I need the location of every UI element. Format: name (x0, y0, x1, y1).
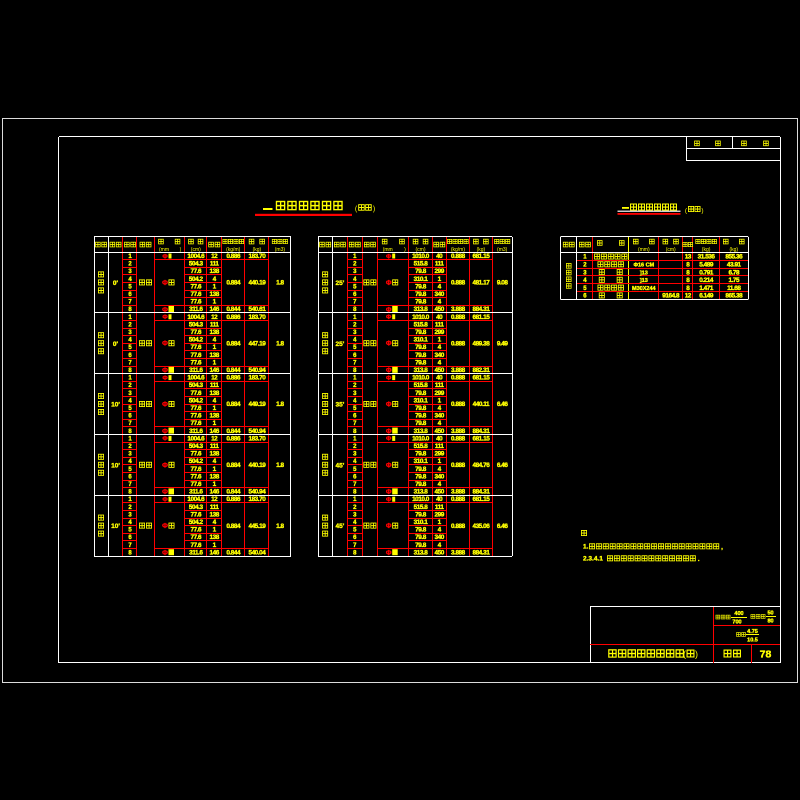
svg-text:78: 78 (760, 649, 772, 661)
svg-text:1004.6: 1004.6 (187, 435, 205, 442)
svg-text:450: 450 (435, 489, 445, 496)
svg-text:1010.0: 1010.0 (412, 496, 430, 503)
svg-text:435.06: 435.06 (472, 523, 490, 530)
svg-text:882.31: 882.31 (472, 367, 490, 374)
svg-text:Φ: Φ (386, 253, 392, 260)
svg-text:79.8: 79.8 (415, 511, 427, 518)
svg-text:Φ: Φ (386, 428, 392, 435)
svg-text:50: 50 (767, 611, 773, 617)
svg-text:0.884: 0.884 (226, 401, 241, 408)
svg-text:540.94: 540.94 (248, 367, 266, 374)
svg-text:12: 12 (211, 435, 218, 442)
svg-text:,: , (721, 544, 723, 551)
svg-text:450: 450 (435, 306, 445, 313)
svg-text:Φ: Φ (386, 436, 392, 443)
svg-text:79.8: 79.8 (415, 420, 427, 427)
svg-text:0': 0' (113, 280, 119, 287)
svg-text:(cm): (cm) (666, 247, 676, 253)
svg-text:313.8: 313.8 (414, 306, 429, 313)
svg-text:79.8: 79.8 (415, 299, 427, 306)
svg-text:504.2: 504.2 (189, 337, 204, 344)
svg-text:1004.6: 1004.6 (187, 375, 205, 382)
svg-text:79.8: 79.8 (415, 451, 427, 458)
svg-text:5.489: 5.489 (699, 262, 714, 269)
svg-text:515.8: 515.8 (414, 321, 429, 328)
svg-text:Φ: Φ (162, 428, 168, 435)
svg-text:79.8: 79.8 (415, 291, 427, 298)
svg-text:440.11: 440.11 (473, 401, 490, 408)
svg-text:1004.6: 1004.6 (187, 253, 205, 260)
svg-text:504.3: 504.3 (189, 321, 204, 328)
svg-text:313.8: 313.8 (414, 428, 429, 435)
svg-text:0.886: 0.886 (226, 314, 241, 321)
svg-text:138: 138 (210, 473, 220, 480)
svg-text:450: 450 (435, 428, 445, 435)
svg-text:540.04: 540.04 (248, 549, 266, 556)
svg-text:]13: ]13 (640, 270, 648, 276)
svg-text:884.31: 884.31 (472, 306, 490, 313)
svg-text:9.49: 9.49 (497, 340, 509, 347)
svg-text:138: 138 (210, 451, 220, 458)
svg-text:515.8: 515.8 (414, 261, 429, 268)
svg-text:313.8: 313.8 (414, 549, 429, 556)
svg-text:45': 45' (336, 523, 345, 530)
svg-text:1.8: 1.8 (276, 401, 284, 408)
svg-text:310.1: 310.1 (414, 458, 429, 465)
svg-text:77.6: 77.6 (190, 420, 202, 427)
svg-text:515.8: 515.8 (414, 382, 429, 389)
svg-text:310.1: 310.1 (414, 397, 429, 404)
svg-text:Φ: Φ (162, 550, 168, 557)
svg-text:Φ: Φ (162, 341, 168, 348)
svg-text:0.844: 0.844 (226, 549, 241, 556)
svg-text:77.6: 77.6 (190, 511, 202, 518)
svg-text:138: 138 (210, 268, 220, 275)
svg-text:884.31: 884.31 (472, 549, 490, 556)
svg-text:77.6: 77.6 (190, 481, 202, 488)
svg-text:340: 340 (435, 291, 445, 298)
svg-text:1010.0: 1010.0 (412, 314, 430, 321)
svg-text:1.8: 1.8 (276, 280, 284, 287)
svg-text:138: 138 (210, 291, 220, 298)
svg-text:77.6: 77.6 (190, 534, 202, 541)
svg-text:183.70: 183.70 (248, 375, 266, 382)
svg-text:79.8: 79.8 (415, 534, 427, 541)
svg-text:310.1: 310.1 (414, 276, 429, 283)
svg-text:3.888: 3.888 (451, 489, 466, 496)
svg-text:Φ: Φ (386, 341, 392, 348)
svg-text:400: 400 (734, 611, 743, 617)
svg-text:40: 40 (436, 375, 443, 382)
svg-text:450: 450 (435, 367, 445, 374)
svg-text:77.6: 77.6 (190, 451, 202, 458)
svg-text:146: 146 (210, 428, 220, 435)
svg-text:0.886: 0.886 (226, 435, 241, 442)
svg-text:(kg): (kg) (702, 247, 711, 253)
svg-text:299: 299 (435, 390, 445, 397)
svg-text:77.6: 77.6 (190, 390, 202, 397)
svg-text:): ) (373, 206, 375, 213)
svg-text:183.70: 183.70 (248, 496, 266, 503)
svg-text:Φ: Φ (386, 523, 392, 530)
svg-text:6.149: 6.149 (699, 293, 714, 300)
svg-text:138: 138 (210, 329, 220, 336)
svg-text:313.8: 313.8 (414, 367, 429, 374)
svg-text:146: 146 (210, 489, 220, 496)
svg-text:504.3: 504.3 (189, 443, 204, 450)
svg-text:79.8: 79.8 (415, 268, 427, 275)
svg-text:(cm): (cm) (191, 247, 201, 253)
svg-text:79.8: 79.8 (415, 344, 427, 351)
svg-text:450: 450 (435, 549, 445, 556)
svg-text:9164.8: 9164.8 (662, 293, 680, 300)
svg-text:0.884: 0.884 (226, 280, 241, 287)
svg-text:504.2: 504.2 (189, 276, 204, 283)
svg-text:515.8: 515.8 (414, 504, 429, 511)
svg-text:Φ: Φ (162, 523, 168, 530)
svg-text:504.3: 504.3 (189, 504, 204, 511)
svg-text:12: 12 (211, 314, 218, 321)
svg-text:1.8: 1.8 (276, 462, 284, 469)
svg-text:25': 25' (336, 280, 345, 287)
svg-text:440.19: 440.19 (248, 462, 266, 469)
svg-text:111: 111 (210, 261, 220, 268)
svg-text:6.46: 6.46 (497, 462, 509, 469)
svg-text:77.6: 77.6 (190, 291, 202, 298)
svg-text:(kg/m): (kg/m) (451, 247, 466, 253)
svg-text:884.31: 884.31 (472, 428, 490, 435)
svg-text:77.6: 77.6 (190, 359, 202, 366)
svg-text:1004.6: 1004.6 (187, 314, 205, 321)
svg-text:12: 12 (685, 293, 692, 300)
svg-text:146: 146 (210, 549, 220, 556)
svg-text:138: 138 (210, 413, 220, 420)
svg-text:138: 138 (210, 352, 220, 359)
svg-text:3.888: 3.888 (451, 428, 466, 435)
svg-text:681.15: 681.15 (472, 375, 490, 382)
svg-text:0.888: 0.888 (451, 523, 466, 530)
svg-text:311.6: 311.6 (189, 428, 203, 435)
svg-text:146: 146 (210, 367, 220, 374)
svg-text:504.2: 504.2 (189, 458, 204, 465)
svg-text:79.8: 79.8 (415, 466, 427, 473)
svg-text:6.78: 6.78 (728, 269, 740, 276)
svg-text:0.844: 0.844 (226, 489, 241, 496)
svg-text:0.888: 0.888 (451, 340, 466, 347)
svg-text:Φ: Φ (386, 375, 392, 382)
svg-text:1.8: 1.8 (276, 340, 284, 347)
svg-text:1.: 1. (583, 544, 589, 551)
svg-text:447.19: 447.19 (248, 340, 266, 347)
svg-text:Φ: Φ (386, 368, 392, 375)
svg-text:855.36: 855.36 (725, 254, 743, 261)
svg-text:Φ: Φ (162, 375, 168, 382)
svg-text:0.214: 0.214 (699, 277, 714, 284)
svg-text:Φ: Φ (162, 489, 168, 496)
svg-text:79.8: 79.8 (415, 405, 427, 412)
svg-text:Φ: Φ (162, 314, 168, 321)
svg-text:80: 80 (767, 619, 773, 625)
svg-text:40: 40 (436, 253, 443, 260)
svg-text:Φ: Φ (386, 280, 392, 287)
svg-text:79.8: 79.8 (415, 359, 427, 366)
svg-text:77.6: 77.6 (190, 283, 202, 290)
svg-text:77.6: 77.6 (190, 344, 202, 351)
svg-text:3.888: 3.888 (451, 367, 466, 374)
svg-text:0': 0' (113, 341, 119, 348)
svg-text:0.844: 0.844 (226, 367, 241, 374)
svg-text:77.6: 77.6 (190, 413, 202, 420)
svg-text:Φ: Φ (162, 253, 168, 260)
svg-text:504.2: 504.2 (189, 397, 204, 404)
svg-text:1.8: 1.8 (276, 523, 284, 530)
svg-text:Φ16 CM: Φ16 CM (633, 263, 654, 269)
svg-text:111: 111 (435, 382, 445, 389)
svg-text:9.08: 9.08 (497, 280, 509, 287)
svg-text:0.886: 0.886 (226, 253, 241, 260)
svg-text:311.6: 311.6 (189, 489, 203, 496)
svg-text:313.8: 313.8 (414, 489, 429, 496)
svg-text:340: 340 (435, 473, 445, 480)
svg-text:0.888: 0.888 (451, 314, 466, 321)
svg-text:310.1: 310.1 (414, 519, 429, 526)
svg-text:865.38: 865.38 (725, 293, 743, 300)
svg-text:540.94: 540.94 (248, 428, 266, 435)
svg-text:Φ: Φ (386, 314, 392, 321)
svg-text:77.6: 77.6 (190, 329, 202, 336)
svg-text:681.15: 681.15 (472, 314, 490, 321)
svg-text:): ) (695, 649, 698, 659)
svg-text:111: 111 (210, 443, 220, 450)
svg-text:111: 111 (210, 382, 220, 389)
svg-text:(mm: (mm (383, 247, 393, 253)
svg-text:183.70: 183.70 (248, 435, 266, 442)
svg-text:(m3): (m3) (497, 247, 508, 253)
svg-text:340: 340 (435, 534, 445, 541)
svg-text:0.884: 0.884 (226, 462, 241, 469)
svg-text:Φ: Φ (386, 550, 392, 557)
svg-text:1.471: 1.471 (699, 285, 714, 292)
svg-text:299: 299 (435, 451, 445, 458)
svg-text:Φ: Φ (162, 436, 168, 443)
svg-text:0.888: 0.888 (451, 280, 466, 287)
svg-text:40: 40 (436, 435, 443, 442)
svg-text:340: 340 (435, 413, 445, 420)
svg-text:504.2: 504.2 (189, 519, 204, 526)
svg-text:]13: ]13 (640, 278, 648, 284)
svg-text:6.46: 6.46 (497, 401, 509, 408)
svg-text:0.844: 0.844 (226, 428, 241, 435)
svg-text:183.70: 183.70 (248, 314, 266, 321)
svg-text:0.888: 0.888 (451, 435, 466, 442)
svg-text:0.884: 0.884 (226, 523, 241, 530)
svg-text:Φ: Φ (386, 497, 392, 504)
svg-text:77.6: 77.6 (190, 405, 202, 412)
svg-text:): ) (701, 208, 703, 215)
svg-text:515.8: 515.8 (414, 443, 429, 450)
svg-text:79.8: 79.8 (415, 352, 427, 359)
svg-text:79.8: 79.8 (415, 413, 427, 420)
svg-text:77.6: 77.6 (190, 542, 202, 549)
svg-text:311.6: 311.6 (189, 367, 203, 374)
svg-text:(mm): (mm) (638, 247, 650, 253)
svg-text:0.886: 0.886 (226, 496, 241, 503)
svg-text:0.888: 0.888 (451, 253, 466, 260)
svg-text:311.6: 311.6 (189, 549, 203, 556)
svg-text:111: 111 (435, 261, 445, 268)
svg-text:10': 10' (111, 523, 120, 530)
svg-text:.: . (698, 556, 700, 563)
svg-text:0.791: 0.791 (699, 269, 714, 276)
svg-text:(: ( (683, 649, 686, 659)
svg-text:3.888: 3.888 (451, 306, 466, 313)
svg-text:Φ: Φ (162, 497, 168, 504)
svg-text:0.884: 0.884 (226, 340, 241, 347)
svg-text:111: 111 (210, 321, 220, 328)
svg-text:Φ: Φ (162, 462, 168, 469)
svg-text:35': 35' (336, 402, 345, 409)
svg-text:6.46: 6.46 (497, 523, 509, 530)
svg-text:311.6: 311.6 (189, 306, 203, 313)
svg-text:79.8: 79.8 (415, 473, 427, 480)
svg-text:Φ: Φ (386, 402, 392, 409)
svg-text:445.19: 445.19 (248, 523, 266, 530)
svg-text:681.15: 681.15 (472, 253, 490, 260)
svg-text:3.888: 3.888 (451, 549, 466, 556)
svg-text:(kg): (kg) (729, 247, 738, 253)
svg-text:2.3.4.1: 2.3.4.1 (583, 556, 603, 563)
svg-text:77.6: 77.6 (190, 527, 202, 534)
svg-text:884.31: 884.31 (472, 489, 490, 496)
svg-text:299: 299 (435, 329, 445, 336)
svg-text:Φ: Φ (162, 368, 168, 375)
svg-text:13: 13 (685, 254, 692, 261)
svg-text:449.19: 449.19 (248, 401, 266, 408)
svg-text:1010.0: 1010.0 (412, 375, 430, 382)
svg-text:77.6: 77.6 (190, 352, 202, 359)
svg-text:700: 700 (732, 620, 741, 626)
svg-text:40: 40 (436, 496, 443, 503)
svg-text:79.8: 79.8 (415, 527, 427, 534)
svg-text:540.94: 540.94 (248, 489, 266, 496)
svg-text:299: 299 (435, 511, 445, 518)
svg-text:138: 138 (210, 390, 220, 397)
svg-text:(mm: (mm (159, 247, 169, 253)
svg-text:0.888: 0.888 (451, 401, 466, 408)
svg-text:(kg/m): (kg/m) (226, 247, 241, 253)
svg-text:138: 138 (210, 511, 220, 518)
svg-text:(kg): (kg) (477, 247, 486, 253)
svg-text:1004.6: 1004.6 (187, 496, 205, 503)
svg-text:(m3): (m3) (275, 247, 286, 253)
svg-text:1.75: 1.75 (728, 277, 740, 284)
svg-text:Φ: Φ (386, 307, 392, 314)
svg-text:540.61: 540.61 (248, 306, 266, 313)
svg-text:12: 12 (211, 253, 218, 260)
svg-text:0.844: 0.844 (226, 306, 241, 313)
svg-text:10': 10' (111, 402, 120, 409)
svg-text:0.886: 0.886 (226, 375, 241, 382)
svg-text:25': 25' (336, 341, 345, 348)
svg-text:10.5: 10.5 (747, 638, 758, 644)
svg-text:31.536: 31.536 (698, 254, 716, 261)
svg-text:340: 340 (435, 352, 445, 359)
svg-text:12: 12 (211, 375, 218, 382)
svg-text:79.8: 79.8 (415, 481, 427, 488)
svg-text:183.70: 183.70 (248, 253, 266, 260)
svg-text:681.15: 681.15 (472, 435, 490, 442)
svg-text:111: 111 (435, 443, 445, 450)
svg-text:12: 12 (211, 496, 218, 503)
svg-text:484.76: 484.76 (472, 462, 490, 469)
svg-text:0.888: 0.888 (451, 462, 466, 469)
svg-text:M30X244: M30X244 (632, 286, 656, 292)
svg-text:(cm): (cm) (416, 247, 426, 253)
svg-text:79.8: 79.8 (415, 329, 427, 336)
svg-text:10': 10' (111, 462, 120, 469)
svg-text:77.6: 77.6 (190, 268, 202, 275)
svg-text:77.6: 77.6 (190, 466, 202, 473)
svg-text:111: 111 (435, 504, 445, 511)
svg-text:Φ: Φ (162, 280, 168, 287)
svg-text:111: 111 (210, 504, 220, 511)
svg-text:299: 299 (435, 268, 445, 275)
svg-text:79.8: 79.8 (415, 542, 427, 549)
svg-text:11.68: 11.68 (727, 285, 741, 292)
svg-text:440.19: 440.19 (248, 280, 266, 287)
svg-text:1010.0: 1010.0 (412, 435, 430, 442)
svg-text:1010.0: 1010.0 (412, 253, 430, 260)
svg-text:Φ: Φ (386, 462, 392, 469)
svg-text:111: 111 (435, 321, 445, 328)
svg-text:40: 40 (436, 314, 443, 321)
svg-text:77.6: 77.6 (190, 473, 202, 480)
svg-text:504.3: 504.3 (189, 382, 204, 389)
svg-text:79.8: 79.8 (415, 390, 427, 397)
svg-text:(kg): (kg) (253, 247, 262, 253)
svg-text:45': 45' (336, 462, 345, 469)
svg-text:489.38: 489.38 (472, 340, 490, 347)
svg-text:138: 138 (210, 534, 220, 541)
svg-text:Φ: Φ (162, 402, 168, 409)
svg-text:Φ: Φ (386, 489, 392, 496)
svg-text:Φ: Φ (162, 307, 168, 314)
svg-text:0.888: 0.888 (451, 496, 466, 503)
svg-text:79.8: 79.8 (415, 283, 427, 290)
svg-text:146: 146 (210, 306, 220, 313)
svg-text:310.1: 310.1 (414, 337, 429, 344)
svg-text:481.17: 481.17 (472, 280, 490, 287)
svg-text:681.15: 681.15 (472, 496, 490, 503)
svg-text:504.3: 504.3 (189, 261, 204, 268)
svg-text:0.888: 0.888 (451, 375, 466, 382)
svg-text:77.6: 77.6 (190, 299, 202, 306)
svg-text:43.91: 43.91 (727, 262, 742, 269)
